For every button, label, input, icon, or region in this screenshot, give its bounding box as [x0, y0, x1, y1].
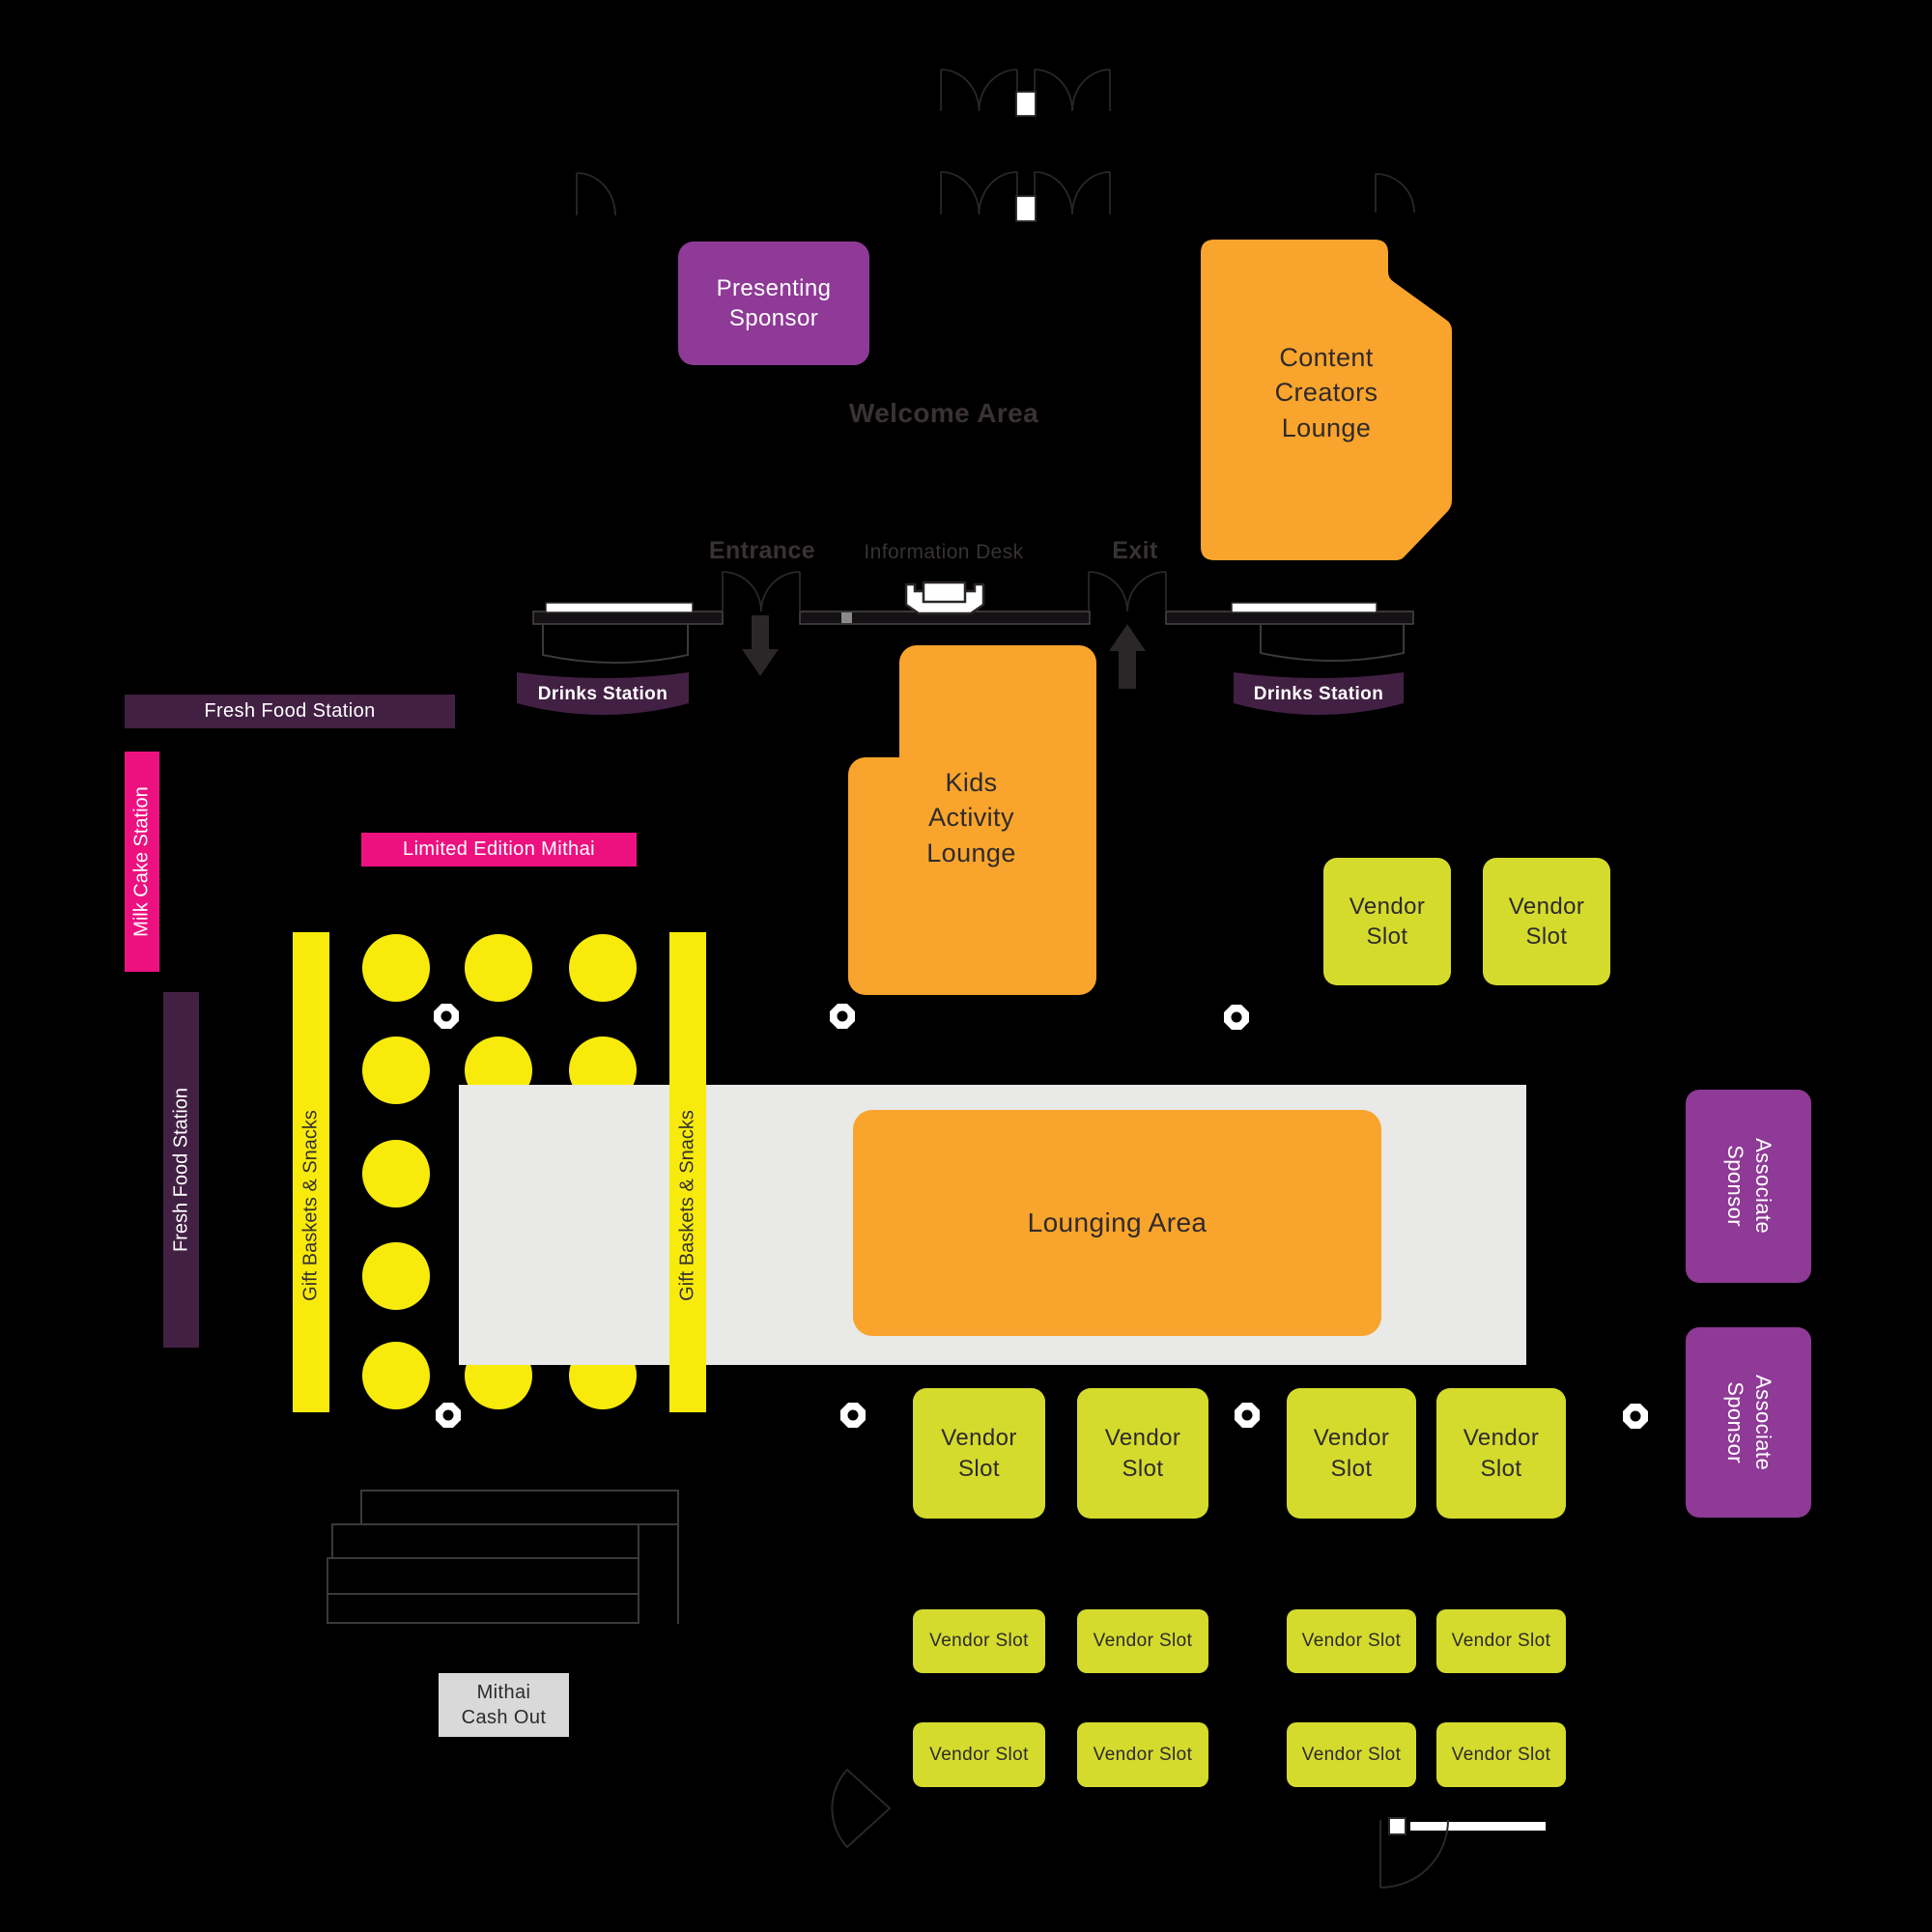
- vendor-slot-label: Vendor Slot: [1509, 892, 1584, 952]
- limited-edition-mithai-label: Limited Edition Mithai: [403, 838, 595, 861]
- entrance-door-icon: [723, 572, 800, 611]
- fresh-food-station-v-label: Fresh Food Station: [170, 1088, 192, 1252]
- milk-cake-station: Milk Cake Station: [125, 752, 159, 972]
- limited-edition-mithai-banner: Limited Edition Mithai: [361, 833, 637, 867]
- vendor-slot: Vendor Slot: [1323, 858, 1451, 985]
- milk-cake-station-label: Milk Cake Station: [131, 786, 154, 937]
- vendor-slot: Vendor Slot: [1436, 1388, 1566, 1519]
- vendor-slot: Vendor Slot: [1077, 1722, 1208, 1787]
- vendor-slot-label: Vendor Slot: [1105, 1423, 1180, 1483]
- kids-activity-lounge-label: Kids Activity Lounge: [858, 765, 1085, 870]
- fan-door-icon: [832, 1770, 890, 1847]
- mithai-cash-out-label: Mithai Cash Out: [462, 1680, 547, 1730]
- bottom-right-door-icon: [1380, 1818, 1546, 1888]
- associate-sponsor-label: Associate Sponsor: [1720, 1139, 1776, 1235]
- vendor-slot-label: Vendor Slot: [1314, 1423, 1389, 1483]
- vendor-slot-label: Vendor Slot: [1094, 1745, 1193, 1766]
- drinks-station-right-label: Drinks Station: [1236, 684, 1401, 705]
- vendor-slot-label: Vendor Slot: [1094, 1631, 1193, 1652]
- vendor-slot-label: Vendor Slot: [941, 1423, 1016, 1483]
- wall-marker: [841, 612, 852, 623]
- vendor-slot-label: Vendor Slot: [929, 1631, 1029, 1652]
- information-desk-label: Information Desk: [847, 541, 1040, 564]
- vendor-slot-label: Vendor Slot: [1463, 1423, 1539, 1483]
- vendor-slot-label: Vendor Slot: [1350, 892, 1425, 952]
- down-arrow-icon: [742, 615, 779, 676]
- gift-baskets-left-label: Gift Baskets & Snacks: [300, 1110, 323, 1301]
- vendor-slot: Vendor Slot: [1287, 1722, 1416, 1787]
- vendor-slot-label: Vendor Slot: [1452, 1631, 1551, 1652]
- welcome-area-label: Welcome Area: [823, 398, 1065, 429]
- vendor-slot-label: Vendor Slot: [929, 1745, 1029, 1766]
- up-arrow-icon: [1109, 624, 1146, 689]
- exit-door-icon: [1089, 572, 1166, 611]
- associate-sponsor-room: Associate Sponsor: [1686, 1327, 1811, 1518]
- vendor-slot: Vendor Slot: [913, 1388, 1045, 1519]
- mithai-cash-out-booth: Mithai Cash Out: [439, 1673, 569, 1737]
- single-door-icon: [1376, 174, 1414, 213]
- vendor-slot-label: Vendor Slot: [1302, 1745, 1402, 1766]
- vendor-slot: Vendor Slot: [1436, 1609, 1566, 1673]
- vendor-slot: Vendor Slot: [913, 1609, 1045, 1673]
- vendor-slot: Vendor Slot: [1287, 1609, 1416, 1673]
- info-desk-icon: [906, 582, 983, 613]
- wall: [533, 611, 1413, 624]
- buffet-tables-outline: [327, 1491, 678, 1624]
- entrance-label: Entrance: [690, 537, 835, 565]
- fresh-food-station-horizontal: Fresh Food Station: [125, 695, 455, 728]
- presenting-sponsor-room: Presenting Sponsor: [678, 241, 869, 365]
- gift-baskets-bar-left: Gift Baskets & Snacks: [293, 932, 329, 1412]
- fresh-food-station-vertical: Fresh Food Station: [163, 992, 199, 1348]
- lounging-area-room: Lounging Area: [853, 1110, 1381, 1336]
- exit-label: Exit: [1087, 537, 1183, 565]
- venue-floor-plan: Presenting Sponsor Welcome Area Content …: [0, 0, 1932, 1932]
- content-creators-lounge-label: Content Creators Lounge: [1215, 340, 1437, 445]
- vendor-slot-label: Vendor Slot: [1452, 1745, 1551, 1766]
- fresh-food-station-h-label: Fresh Food Station: [204, 700, 375, 723]
- vendor-slot: Vendor Slot: [1436, 1722, 1566, 1787]
- single-door-icon: [577, 173, 615, 215]
- gift-baskets-right-label: Gift Baskets & Snacks: [677, 1110, 699, 1301]
- drinks-station-left-label: Drinks Station: [521, 684, 685, 705]
- associate-sponsor-room: Associate Sponsor: [1686, 1090, 1811, 1283]
- double-door-icon: [941, 70, 1110, 116]
- vendor-slot: Vendor Slot: [1077, 1388, 1208, 1519]
- vendor-slot: Vendor Slot: [913, 1722, 1045, 1787]
- vendor-slot: Vendor Slot: [1483, 858, 1610, 985]
- presenting-sponsor-label: Presenting Sponsor: [717, 273, 832, 333]
- double-door-icon: [941, 172, 1110, 221]
- vendor-slot-label: Vendor Slot: [1302, 1631, 1402, 1652]
- vendor-slot: Vendor Slot: [1077, 1609, 1208, 1673]
- associate-sponsor-label: Associate Sponsor: [1720, 1375, 1776, 1470]
- lounging-area-label: Lounging Area: [1028, 1207, 1207, 1238]
- vendor-slot: Vendor Slot: [1287, 1388, 1416, 1519]
- gift-baskets-bar-right: Gift Baskets & Snacks: [669, 932, 706, 1412]
